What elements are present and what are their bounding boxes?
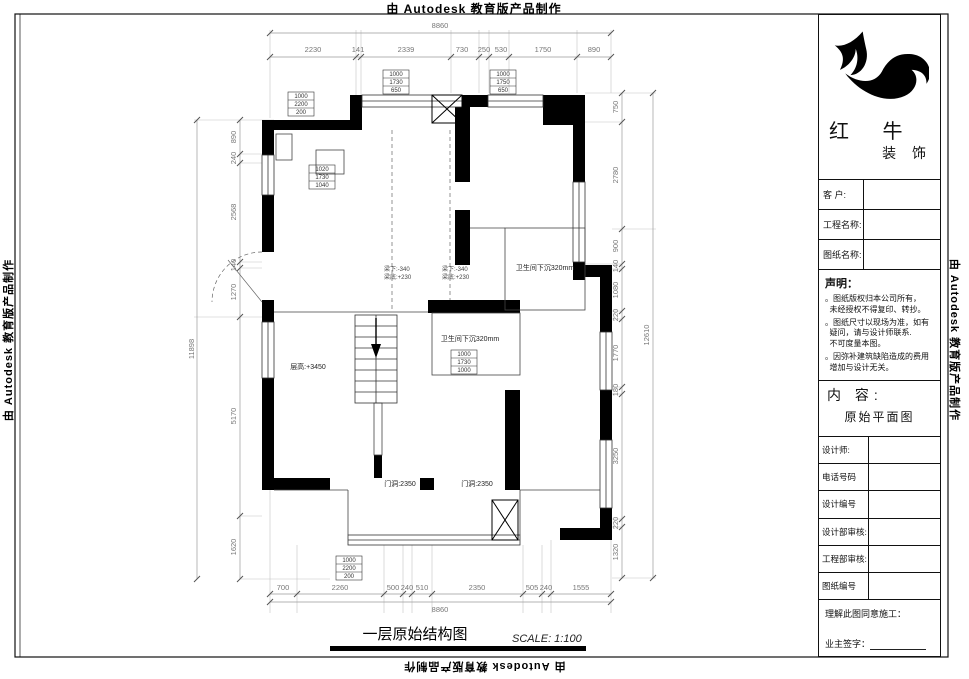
row-drawing-number: 图纸编号 <box>819 573 940 600</box>
content-box: 内 容: 原始平面图 <box>819 381 940 437</box>
content-label: 内 容: <box>819 385 940 405</box>
approval-text: 理解此图同意施工： <box>825 607 935 620</box>
bull-logo-icon <box>833 27 929 111</box>
dim-label: 1270 <box>229 284 238 301</box>
tag-value: 1000 <box>389 72 403 78</box>
tag-value: 1730 <box>315 175 329 181</box>
tag-value: 2200 <box>294 102 308 108</box>
declaration-box: 声明： 。图纸版权归本公司所有， 未经授权不得复印、转抄。 。图纸尺寸以现场为准… <box>819 270 940 381</box>
dim-label: 8860 <box>432 21 449 30</box>
dim-label: 2230 <box>305 45 322 54</box>
dim-label: 12610 <box>642 325 651 346</box>
dim-label: 1620 <box>229 539 238 556</box>
door-opening-label: 门洞:2350 <box>384 479 416 488</box>
row-engineering-dept-review: 工程部审核: <box>819 546 940 573</box>
dimension-labels-right: 12610 750 2780 900 140 1080 220 1770 180… <box>611 101 651 561</box>
dim-label: 750 <box>611 101 620 114</box>
tag-value: 2200 <box>342 566 356 572</box>
dim-label: 1320 <box>611 544 620 561</box>
declaration-item: 。图纸尺寸以现场为准，如有 疑问，请与设计师联系. 不可度量本图。 <box>825 318 935 350</box>
tag-value: 1750 <box>496 80 510 86</box>
stair-down-arrow-icon <box>371 344 381 358</box>
signature-line <box>870 639 926 650</box>
dim-label: 140 <box>611 260 620 273</box>
dimension-labels-bottom: 8860 700 2260 500 240 510 2350 505 240 1… <box>277 583 590 614</box>
plan-scale: SCALE: 1:100 <box>512 633 583 645</box>
tag-value: 200 <box>296 110 307 116</box>
room-label-bathroom-center: 卫生间下沉320mm <box>441 334 500 343</box>
declaration-item: 。图纸版权归本公司所有， 未经授权不得复印、转抄。 <box>825 294 935 316</box>
signature-label: 业主签字： <box>825 639 870 649</box>
row-value-empty <box>869 546 940 572</box>
dim-label: 700 <box>277 583 290 592</box>
dim-label: 2339 <box>398 45 415 54</box>
tag-value: 1000 <box>294 94 308 100</box>
brand-name: 红 牛 <box>829 115 917 144</box>
declaration-item: 。因弥补建筑缺陷造成的费用 增加与设计无关。 <box>825 352 935 374</box>
field-value-empty <box>864 210 940 239</box>
field-project-name: 工程名称: <box>819 210 940 240</box>
beam-note: 梁底:+230 <box>442 273 470 281</box>
dim-label: 505 <box>526 583 539 592</box>
dim-label: 530 <box>495 45 508 54</box>
dim-label: 2350 <box>469 583 486 592</box>
field-label: 图纸名称: <box>819 240 864 269</box>
plan-title: 一层原始结构图 <box>362 626 467 643</box>
row-label: 图纸编号 <box>819 573 869 599</box>
dim-label: 1555 <box>573 583 590 592</box>
content-value: 原始平面图 <box>819 408 940 425</box>
row-design-dept-review: 设计部审核: <box>819 519 940 546</box>
drawing-sheet: 由 Autodesk 教育版产品制作 由 Autodesk 教育版产品制作 由 … <box>0 0 969 679</box>
dimension-labels-top: 8860 2230 141 2339 730 250 530 1750 890 <box>305 21 601 54</box>
walls <box>262 95 612 540</box>
dim-label: 240 <box>401 583 414 592</box>
field-label: 工程名称: <box>819 210 864 239</box>
tag-value: 1040 <box>315 183 329 189</box>
tag-value: 1000 <box>457 352 471 358</box>
title-block: 红 牛 装 饰 客 户: 工程名称: 图纸名称: 声明： 。图纸版权归本公司所有… <box>818 14 941 657</box>
tag-value: 1000 <box>496 72 510 78</box>
dim-label: 900 <box>611 240 620 253</box>
dim-label: 240 <box>540 583 553 592</box>
row-label: 电话号码 <box>819 464 869 490</box>
field-value-empty <box>864 180 940 209</box>
plan-labels: 卫生间下沉320mm 卫生间下沉320mm 层高:+3450 门洞:2350 门… <box>290 263 574 488</box>
row-value-empty <box>869 437 940 463</box>
field-label: 客 户: <box>819 180 864 209</box>
dim-label: 141 <box>352 45 365 54</box>
row-label: 设计部审核: <box>819 519 869 545</box>
dim-label: 500 <box>387 583 400 592</box>
field-drawing-name: 图纸名称: <box>819 240 940 270</box>
dim-label: 250 <box>478 45 491 54</box>
row-label: 设计编号 <box>819 491 869 517</box>
brand-subtitle: 装 饰 <box>882 143 932 163</box>
field-customer: 客 户: <box>819 180 940 210</box>
dim-label: 240 <box>229 152 238 165</box>
dim-label: 11898 <box>187 339 196 359</box>
tag-value: 650 <box>498 88 509 94</box>
dim-label: 2780 <box>611 167 620 184</box>
tag-value: 1000 <box>457 368 471 374</box>
floor-height-label: 层高:+3450 <box>290 362 326 371</box>
opening-tags: 1000 2200 200 1000 1730 650 1000 1750 65… <box>288 70 516 580</box>
door-opening-label: 门洞:2350 <box>461 479 493 488</box>
title-underline-bar <box>330 646 586 651</box>
dimension-labels-left: 11898 890 240 2568 140 1270 5170 1620 <box>187 131 238 556</box>
beam-note: 梁下:-340 <box>442 265 468 273</box>
tag-value: 1730 <box>457 360 471 366</box>
dim-label: 890 <box>588 45 601 54</box>
dim-label: 220 <box>611 517 620 530</box>
row-designer: 设计师: <box>819 437 940 464</box>
row-phone: 电话号码 <box>819 464 940 491</box>
dim-label: 730 <box>456 45 469 54</box>
dashed-lines <box>212 130 450 310</box>
row-label: 设计师: <box>819 437 869 463</box>
dim-label: 220 <box>611 309 620 322</box>
company-logo-cell: 红 牛 装 饰 <box>819 15 940 180</box>
room-label-bathroom-upper: 卫生间下沉320mm <box>516 263 575 272</box>
tag-value: 1020 <box>315 167 329 173</box>
row-label: 工程部审核: <box>819 546 869 572</box>
tag-value: 1730 <box>389 80 403 86</box>
row-design-number: 设计编号 <box>819 491 940 518</box>
info-rows: 设计师: 电话号码 设计编号 设计部审核: 工程部审核: 图纸编号 <box>819 437 940 600</box>
tag-value: 1000 <box>342 558 356 564</box>
row-value-empty <box>869 519 940 545</box>
dim-label: 8860 <box>432 605 449 614</box>
tag-value: 200 <box>344 574 355 580</box>
tag-value: 650 <box>391 88 402 94</box>
dim-label: 5170 <box>229 408 238 425</box>
signature-row: 业主签字： <box>825 637 935 650</box>
dim-label: 2568 <box>229 204 238 221</box>
dim-label: 890 <box>229 131 238 144</box>
partitions <box>274 134 600 535</box>
approval-box: 理解此图同意施工： 业主签字： <box>819 600 940 656</box>
dim-label: 1750 <box>535 45 552 54</box>
dim-label: 2260 <box>332 583 349 592</box>
drawing-title: 一层原始结构图 SCALE: 1:100 <box>330 626 586 651</box>
row-value-empty <box>869 464 940 490</box>
row-value-empty <box>869 491 940 517</box>
beam-note: 梁下:-340 <box>384 265 410 273</box>
row-value-empty <box>869 573 940 599</box>
dim-label: 1080 <box>611 282 620 299</box>
field-value-empty <box>864 240 940 269</box>
dim-label: 510 <box>416 583 429 592</box>
windows <box>262 95 612 545</box>
staircase <box>355 315 397 403</box>
declaration-title: 声明： <box>825 275 935 291</box>
beam-note: 梁底:+230 <box>384 273 412 281</box>
